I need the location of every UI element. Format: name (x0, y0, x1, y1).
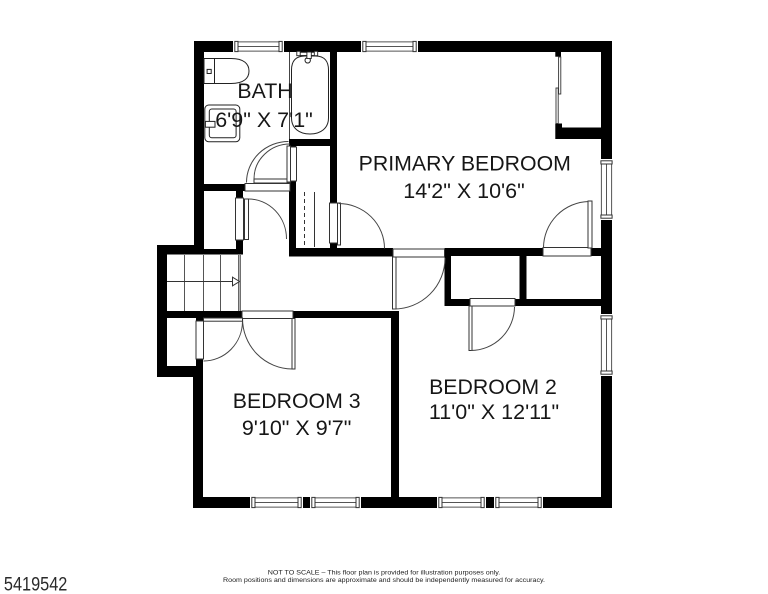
svg-text:11'0" X 12'11": 11'0" X 12'11" (429, 400, 559, 424)
svg-text:PRIMARY BEDROOM: PRIMARY BEDROOM (359, 152, 571, 176)
svg-text:5419542: 5419542 (4, 575, 68, 594)
svg-text:BEDROOM 2: BEDROOM 2 (429, 375, 557, 399)
svg-text:BATH: BATH (237, 79, 292, 103)
svg-text:9'10" X 9'7": 9'10" X 9'7" (242, 416, 352, 440)
svg-text:NOT TO SCALE – This floor plan: NOT TO SCALE – This floor plan is provid… (268, 570, 501, 577)
svg-text:6'9" X 7'1": 6'9" X 7'1" (215, 108, 313, 132)
svg-text:14'2" X 10'6": 14'2" X 10'6" (403, 179, 525, 203)
svg-text:Room positions and dimensions: Room positions and dimensions are approx… (223, 577, 545, 584)
svg-text:BEDROOM 3: BEDROOM 3 (233, 389, 361, 413)
